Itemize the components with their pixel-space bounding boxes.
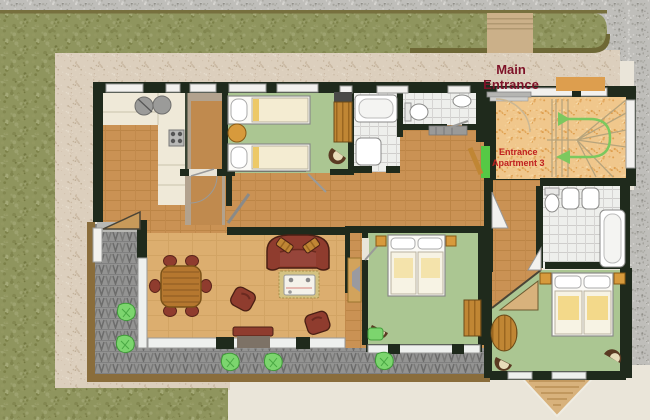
- svg-text:Apartment 3: Apartment 3: [492, 158, 545, 168]
- svg-text:Entrance: Entrance: [483, 77, 539, 92]
- svg-text:Entrance: Entrance: [499, 147, 538, 157]
- svg-text:Main: Main: [496, 62, 526, 77]
